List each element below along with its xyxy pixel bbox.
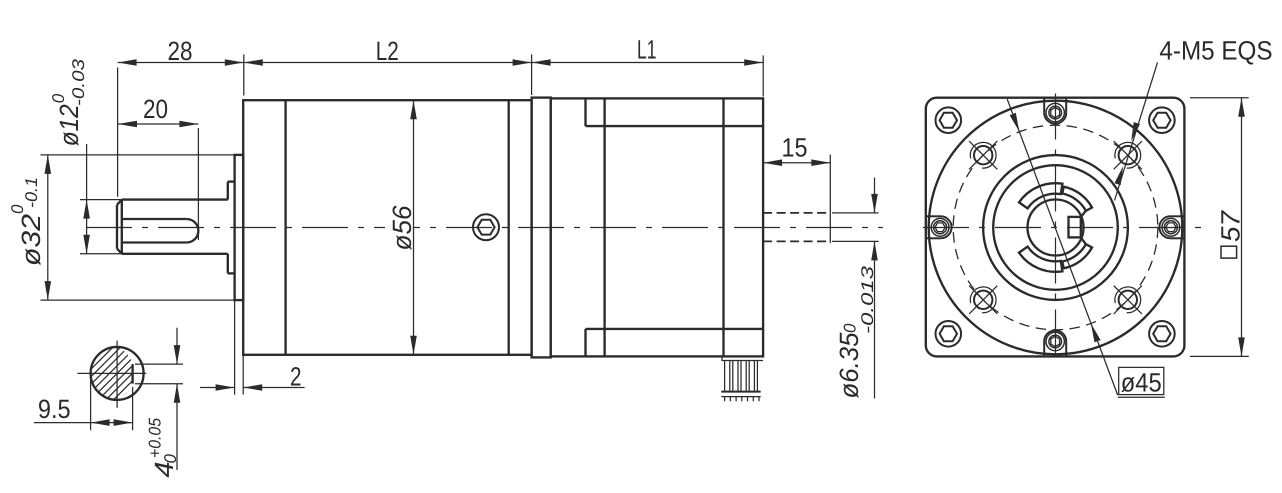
svg-text:L2: L2 bbox=[376, 36, 399, 66]
svg-text:-0.013: -0.013 bbox=[858, 265, 877, 334]
svg-text:+0.05: +0.05 bbox=[146, 417, 165, 458]
svg-text:57: 57 bbox=[1216, 210, 1246, 242]
svg-text:15: 15 bbox=[782, 132, 808, 162]
svg-text:L1: L1 bbox=[637, 35, 657, 65]
svg-text:ø12: ø12 bbox=[54, 104, 84, 146]
svg-text:20: 20 bbox=[143, 94, 168, 124]
svg-text:ø45: ø45 bbox=[1121, 368, 1162, 398]
svg-text:2: 2 bbox=[290, 362, 302, 392]
svg-text:0: 0 bbox=[841, 323, 860, 333]
svg-text:28: 28 bbox=[168, 36, 193, 66]
svg-text:-0.1: -0.1 bbox=[22, 177, 41, 208]
svg-text:4-M5 EQS: 4-M5 EQS bbox=[1159, 36, 1272, 66]
svg-text:ø6.35: ø6.35 bbox=[834, 332, 864, 398]
svg-text:9.5: 9.5 bbox=[38, 394, 71, 424]
svg-text:ø56: ø56 bbox=[387, 205, 417, 250]
svg-text:-0.03: -0.03 bbox=[69, 58, 88, 106]
svg-text:ø32: ø32 bbox=[16, 214, 46, 266]
svg-text:0: 0 bbox=[49, 93, 68, 103]
